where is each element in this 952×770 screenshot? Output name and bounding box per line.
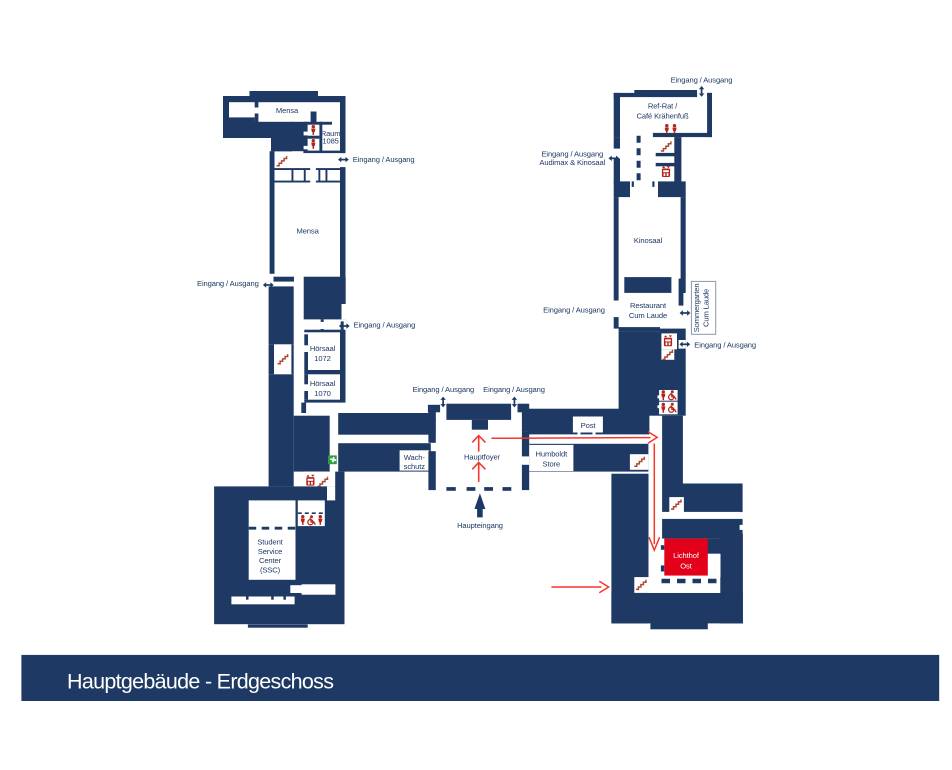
svg-text:Hauptfoyer: Hauptfoyer (464, 453, 501, 462)
svg-text:Post: Post (581, 421, 597, 430)
svg-text:Student: Student (257, 538, 283, 547)
svg-text:Eingang / Ausgang: Eingang / Ausgang (412, 385, 474, 394)
svg-text:Mensa: Mensa (296, 227, 319, 236)
svg-text:(SSC): (SSC) (260, 565, 281, 574)
svg-text:Humboldt: Humboldt (536, 449, 569, 458)
svg-text:Eingang / Ausgang: Eingang / Ausgang (197, 279, 259, 288)
svg-text:Cum Laude: Cum Laude (629, 311, 667, 320)
svg-text:Eingang / Ausgang: Eingang / Ausgang (694, 340, 756, 349)
svg-text:Hörsaal: Hörsaal (310, 344, 336, 353)
svg-text:Mensa: Mensa (276, 106, 299, 115)
svg-text:Sommergarten: Sommergarten (692, 284, 701, 333)
svg-text:Store: Store (543, 459, 561, 468)
svg-text:Restaurant: Restaurant (630, 301, 667, 310)
svg-text:schutz: schutz (404, 462, 426, 471)
svg-text:1085: 1085 (322, 137, 338, 146)
svg-text:Wach-: Wach- (404, 453, 426, 462)
svg-text:Cum Laude: Cum Laude (702, 289, 711, 327)
svg-text:Lichthof: Lichthof (673, 551, 700, 560)
svg-text:Ref-Rat /: Ref-Rat / (648, 101, 678, 110)
svg-text:Kinosaal: Kinosaal (634, 236, 663, 245)
svg-text:Eingang / Ausgang: Eingang / Ausgang (354, 321, 416, 330)
svg-text:Hauptgebäude - Erdgeschoss: Hauptgebäude - Erdgeschoss (67, 669, 333, 693)
svg-text:1072: 1072 (314, 354, 330, 363)
svg-text:Service: Service (258, 547, 282, 556)
svg-text:Haupteingang: Haupteingang (457, 521, 503, 530)
svg-text:Audimax & Kinosaal: Audimax & Kinosaal (539, 158, 605, 167)
svg-text:Ost: Ost (680, 562, 692, 571)
svg-text:Hörsaal: Hörsaal (310, 379, 336, 388)
svg-text:Eingang / Ausgang: Eingang / Ausgang (483, 385, 545, 394)
svg-text:Center: Center (259, 556, 282, 565)
svg-text:Eingang / Ausgang: Eingang / Ausgang (671, 75, 733, 84)
svg-text:Eingang / Ausgang: Eingang / Ausgang (543, 305, 605, 314)
svg-text:Café Krähenfuß: Café Krähenfuß (637, 111, 689, 120)
svg-text:Eingang / Ausgang: Eingang / Ausgang (353, 155, 415, 164)
svg-text:1070: 1070 (314, 389, 330, 398)
